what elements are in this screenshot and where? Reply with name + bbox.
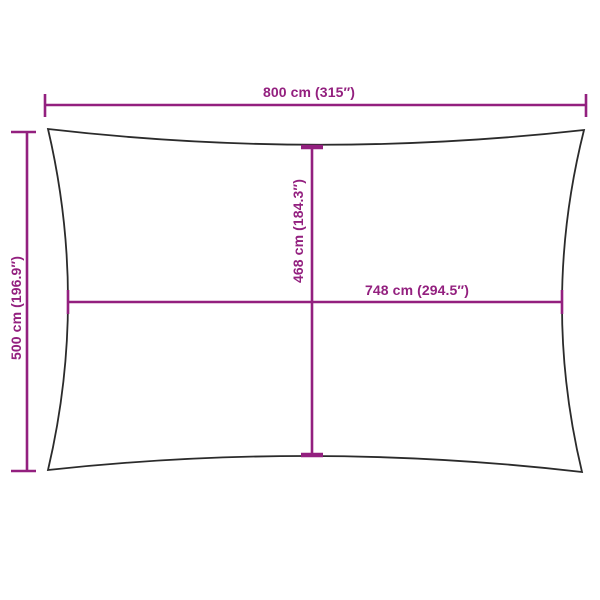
diagram-canvas: 800 cm (315″) 500 cm (196.9″) 468 cm (18… xyxy=(0,0,600,600)
dimension-label-inner-width: 748 cm (294.5″) xyxy=(365,282,469,298)
shade-sail-outline xyxy=(48,129,584,472)
dimension-label-total-height: 500 cm (196.9″) xyxy=(8,256,24,360)
dimension-label-total-width: 800 cm (315″) xyxy=(263,84,355,100)
dimension-total-height: 500 cm (196.9″) xyxy=(8,132,36,471)
dimension-inner-width: 748 cm (294.5″) xyxy=(68,282,562,314)
shade-sail-dimension-diagram: 800 cm (315″) 500 cm (196.9″) 468 cm (18… xyxy=(0,0,600,600)
dimension-label-inner-height: 468 cm (184.3″) xyxy=(290,179,306,283)
dimension-total-width: 800 cm (315″) xyxy=(45,84,586,117)
